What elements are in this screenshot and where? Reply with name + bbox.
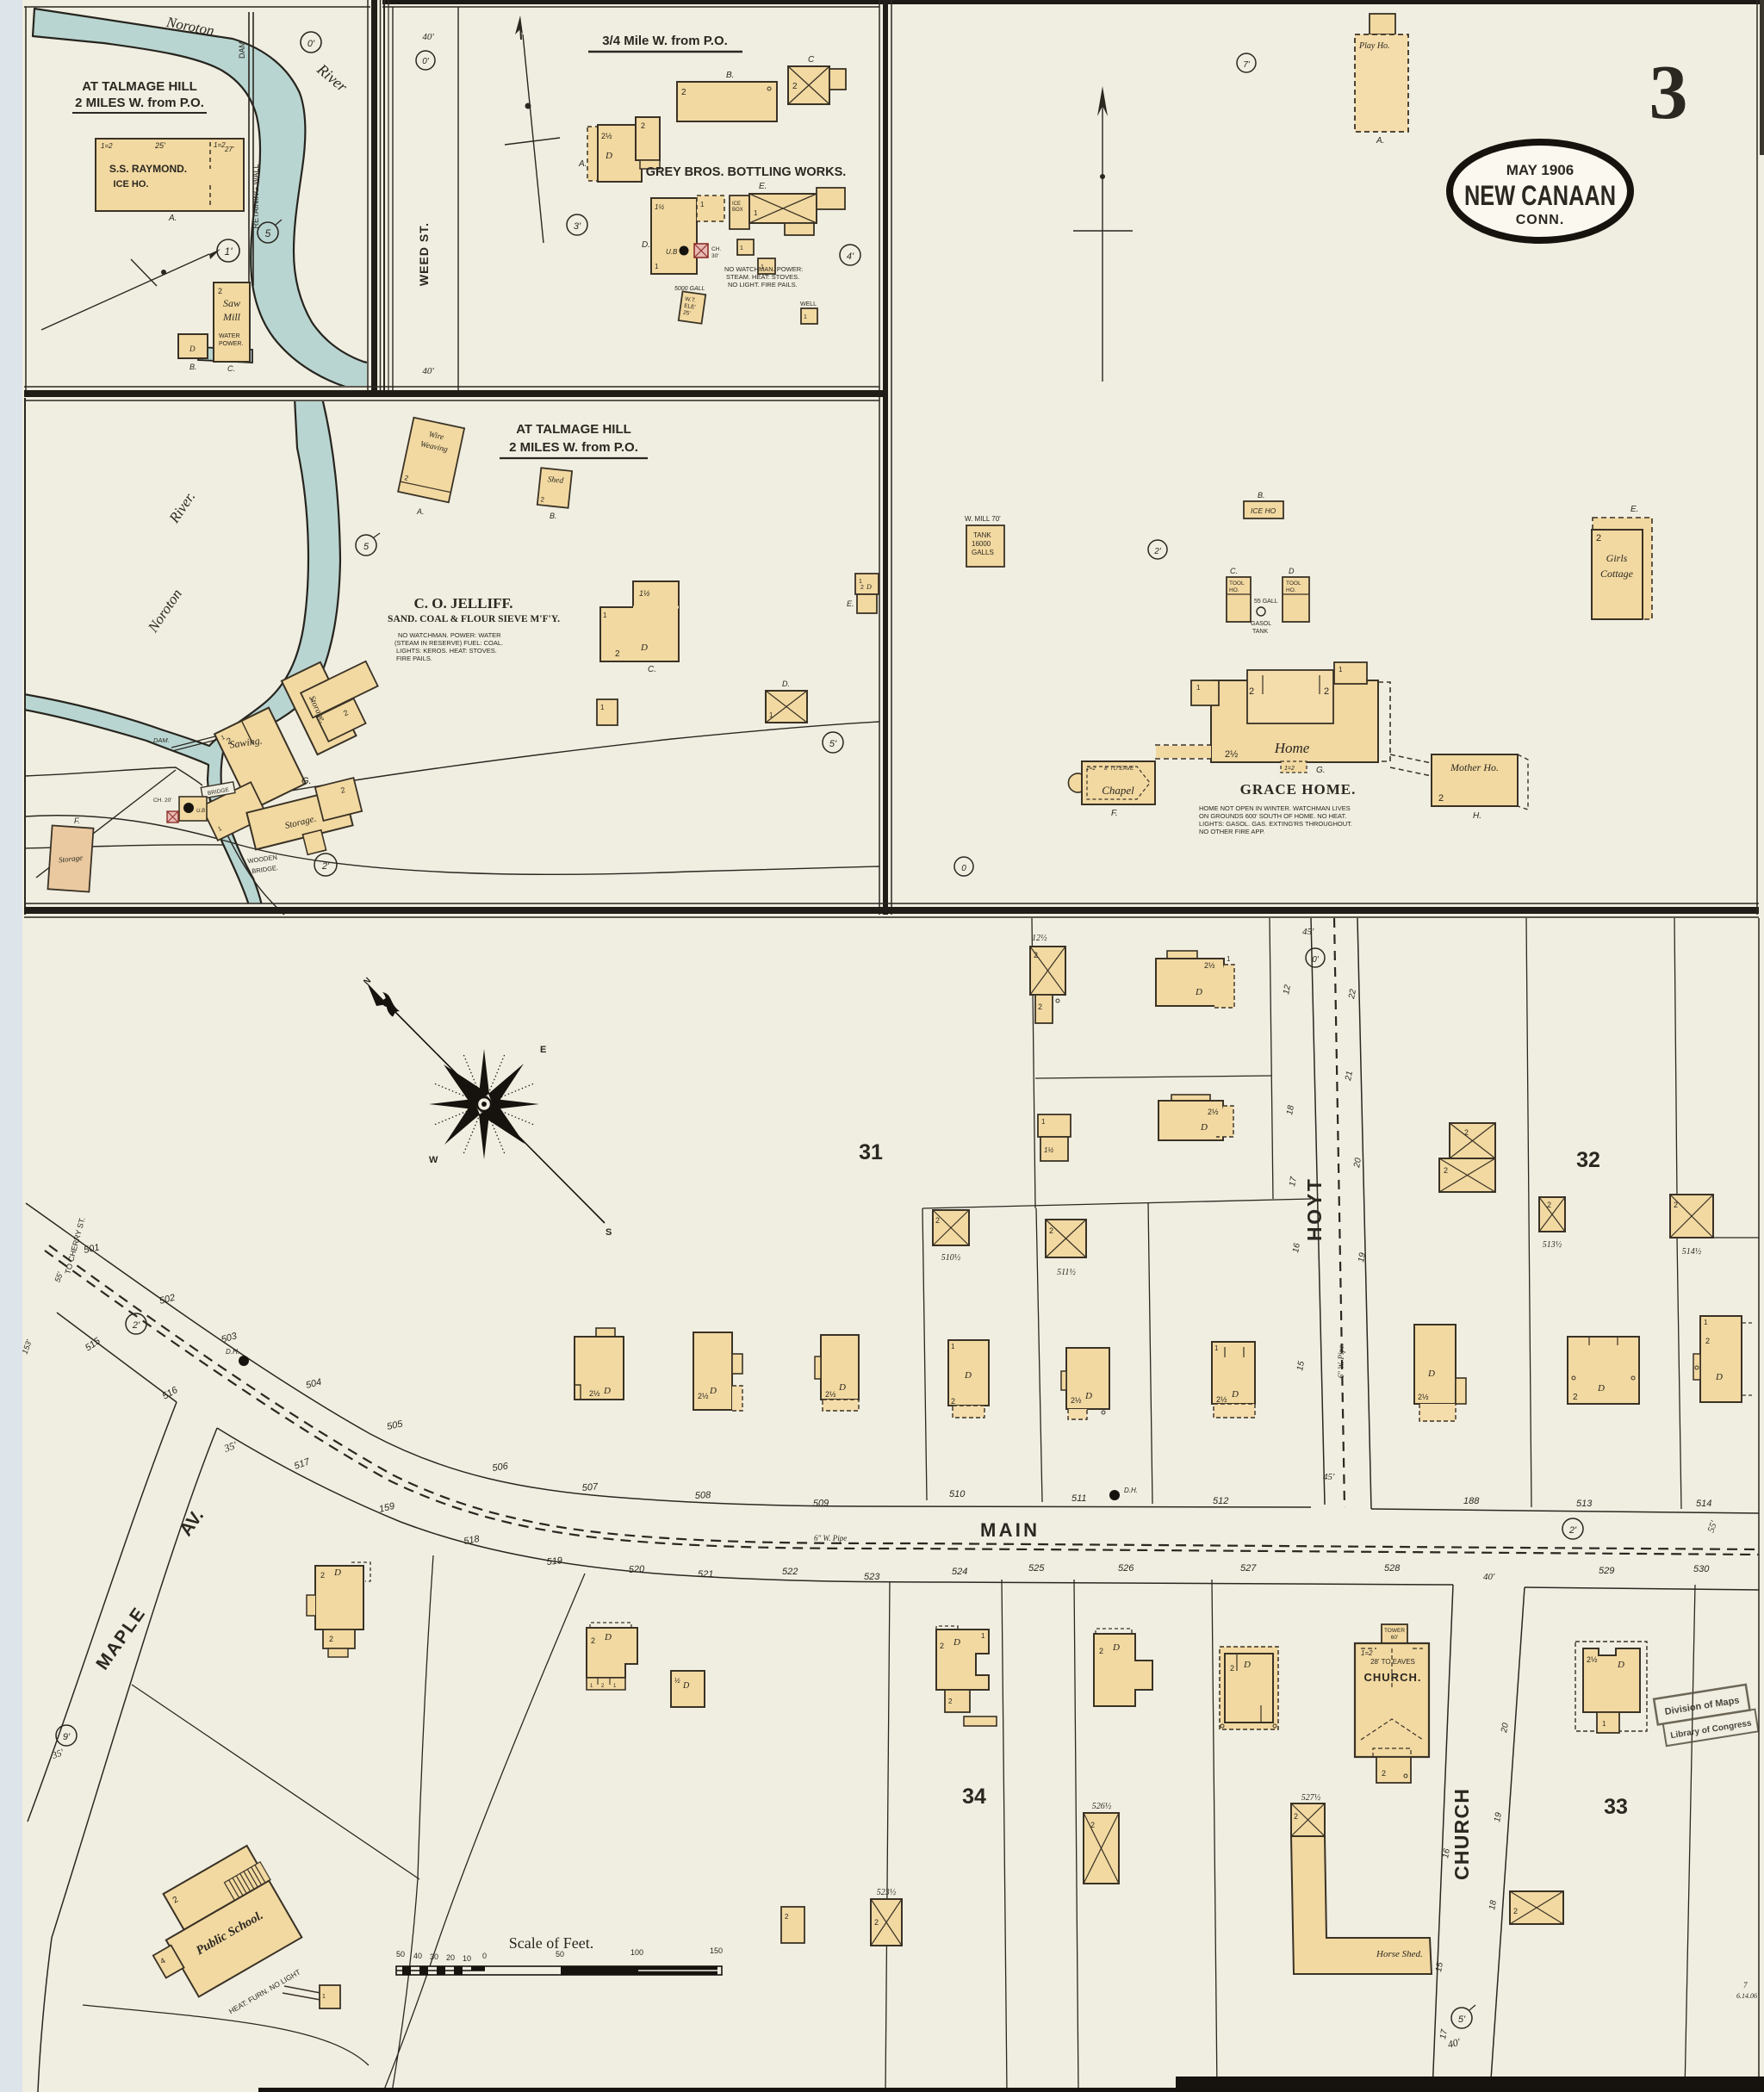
svg-text:1: 1 [951, 1343, 955, 1350]
svg-text:TOWER: TOWER [1384, 1628, 1405, 1634]
svg-text:D: D [682, 1681, 690, 1691]
svg-text:45': 45' [1323, 1472, 1335, 1482]
svg-text:34: 34 [962, 1785, 986, 1809]
svg-text:D: D [1200, 1122, 1208, 1133]
svg-text:Shed: Shed [547, 475, 564, 486]
svg-text:31: 31 [859, 1140, 883, 1164]
svg-text:1: 1 [1196, 684, 1201, 692]
svg-text:2: 2 [951, 1397, 955, 1406]
svg-text:D.H.: D.H. [226, 1348, 239, 1356]
svg-text:40: 40 [413, 1952, 422, 1960]
svg-text:40': 40' [422, 366, 434, 376]
svg-text:2: 2 [1705, 1337, 1710, 1345]
svg-text:CHURCH.: CHURCH. [1364, 1671, 1422, 1684]
svg-text:2: 2 [1444, 1166, 1448, 1175]
svg-text:5': 5' [1458, 2014, 1466, 2025]
svg-text:2: 2 [329, 1635, 333, 1643]
svg-text:2: 2 [1438, 793, 1444, 804]
svg-text:2: 2 [218, 287, 222, 295]
svg-text:1=2: 1=2 [101, 142, 113, 150]
svg-text:523: 523 [864, 1572, 880, 1582]
svg-text:C. O. JELLIFF.: C. O. JELLIFF. [413, 595, 512, 611]
svg-text:1: 1 [322, 1994, 326, 2000]
svg-text:D: D [953, 1637, 960, 1648]
svg-text:D: D [838, 1382, 846, 1393]
svg-text:2½: 2½ [1204, 961, 1215, 970]
svg-text:27': 27' [224, 146, 234, 153]
svg-text:1: 1 [754, 209, 758, 217]
svg-text:2: 2 [860, 585, 864, 591]
svg-text:D: D [1289, 567, 1295, 575]
svg-text:RETAINING WALL: RETAINING WALL [252, 164, 260, 228]
svg-text:2½: 2½ [1208, 1108, 1219, 1116]
svg-text:1½: 1½ [639, 589, 650, 598]
svg-text:B.: B. [189, 363, 197, 371]
svg-text:2: 2 [874, 1918, 879, 1927]
svg-text:2: 2 [1674, 1201, 1678, 1209]
svg-text:D: D [640, 642, 648, 653]
svg-text:H.: H. [1473, 811, 1481, 821]
svg-text:2: 2 [785, 1913, 789, 1921]
svg-text:1': 1' [225, 245, 233, 258]
svg-text:B.: B. [1258, 491, 1265, 500]
svg-text:2: 2 [1090, 1821, 1095, 1829]
svg-text:30: 30 [430, 1952, 438, 1961]
svg-text:514: 514 [1696, 1499, 1711, 1509]
svg-text:D: D [1597, 1383, 1605, 1394]
svg-text:HOYT: HOYT [1303, 1179, 1326, 1241]
svg-text:GRACE HOME.: GRACE HOME. [1240, 781, 1357, 798]
svg-text:7: 7 [1743, 1981, 1748, 1990]
svg-text:7': 7' [1243, 60, 1251, 70]
svg-text:1: 1 [600, 704, 605, 711]
svg-text:2: 2 [591, 1636, 595, 1645]
svg-text:1: 1 [1041, 1118, 1046, 1126]
svg-text:4': 4' [847, 251, 854, 262]
svg-text:BOX: BOX [732, 208, 743, 213]
svg-text:D: D [1231, 1389, 1239, 1400]
svg-text:Home: Home [1274, 740, 1310, 756]
svg-text:S.S. RAYMOND.: S.S. RAYMOND. [109, 163, 187, 175]
svg-text:508: 508 [695, 1490, 712, 1501]
svg-text:527: 527 [1240, 1563, 1257, 1574]
svg-text:514½: 514½ [1682, 1247, 1702, 1257]
svg-text:½: ½ [674, 1677, 680, 1685]
svg-text:5000 GALL: 5000 GALL [674, 286, 705, 292]
svg-text:45': 45' [1302, 927, 1314, 937]
svg-text:HO.: HO. [1229, 587, 1239, 593]
svg-text:E.: E. [1630, 505, 1638, 514]
svg-text:D.H.: D.H. [1124, 1487, 1138, 1494]
svg-text:Scale of Feet.: Scale of Feet. [509, 1934, 593, 1952]
svg-text:6.14.06: 6.14.06 [1736, 1992, 1757, 2000]
svg-text:D: D [866, 583, 872, 591]
svg-text:AT TALMAGE HILL: AT TALMAGE HILL [82, 79, 197, 94]
svg-text:D: D [709, 1386, 717, 1396]
svg-text:2': 2' [321, 861, 330, 872]
svg-text:520: 520 [629, 1564, 646, 1575]
svg-text:2: 2 [1099, 1647, 1103, 1655]
svg-text:150: 150 [710, 1946, 723, 1955]
svg-text:ICE HO.: ICE HO. [114, 179, 149, 189]
svg-text:1: 1 [981, 1632, 985, 1640]
svg-text:519: 519 [546, 1555, 563, 1567]
svg-text:50: 50 [556, 1950, 564, 1959]
svg-text:Horse Shed.: Horse Shed. [1376, 1949, 1423, 1959]
svg-text:D.: D. [642, 240, 650, 250]
svg-text:FIRE PAILS.: FIRE PAILS. [396, 655, 432, 662]
svg-text:W. MILL 70': W. MILL 70' [965, 515, 1001, 523]
svg-text:POWER.: POWER. [219, 341, 243, 347]
svg-text:40': 40' [1483, 1572, 1495, 1582]
svg-text:8' TO EAVE: 8' TO EAVE [1104, 766, 1134, 772]
svg-text:0': 0' [1312, 955, 1320, 965]
svg-text:28' TO EAVES: 28' TO EAVES [1370, 1658, 1415, 1666]
svg-text:HOME NOT OPEN IN WINTER. WATCH: HOME NOT OPEN IN WINTER. WATCHMAN LIVES [1199, 804, 1351, 812]
svg-text:2½: 2½ [589, 1389, 600, 1398]
svg-text:E: E [540, 1045, 546, 1055]
svg-text:1=2: 1=2 [1086, 766, 1096, 772]
svg-text:525: 525 [1028, 1563, 1045, 1574]
svg-text:Saw: Saw [223, 297, 240, 309]
svg-text:1=2: 1=2 [214, 141, 226, 149]
svg-text:2: 2 [1464, 1128, 1469, 1137]
svg-text:CH.: CH. [711, 246, 721, 252]
svg-text:529: 529 [1599, 1566, 1614, 1576]
svg-text:2½: 2½ [1225, 749, 1238, 760]
svg-text:2: 2 [1249, 686, 1254, 697]
svg-text:2: 2 [681, 88, 686, 97]
svg-text:2: 2 [1547, 1201, 1551, 1209]
svg-text:2: 2 [1294, 1812, 1298, 1821]
svg-text:2 MILES W. from P.O.: 2 MILES W. from P.O. [75, 96, 204, 110]
svg-text:6" W. Pipe.: 6" W. Pipe. [1337, 1344, 1345, 1378]
svg-text:20: 20 [1500, 1722, 1511, 1734]
svg-text:20: 20 [446, 1953, 455, 1962]
svg-text:Mill: Mill [222, 311, 241, 323]
svg-text:CH. 20': CH. 20' [153, 798, 171, 804]
svg-text:30': 30' [711, 253, 718, 259]
svg-text:ON GROUNDS 600' SOUTH OF HOME.: ON GROUNDS 600' SOUTH OF HOME. NO HEAT. [1199, 812, 1346, 820]
svg-text:F.: F. [74, 816, 80, 825]
svg-text:LIGHTS: GASOL. GAS. EXTING'RS: LIGHTS: GASOL. GAS. EXTING'RS THROUGHOUT… [1199, 820, 1352, 828]
svg-text:526½: 526½ [1092, 1802, 1112, 1811]
svg-text:3/4 Mile W. from P.O.: 3/4 Mile W. from P.O. [602, 34, 728, 48]
svg-text:2: 2 [615, 649, 620, 659]
svg-text:1: 1 [740, 245, 743, 251]
svg-text:20: 20 [1352, 1157, 1363, 1169]
svg-text:12½: 12½ [1032, 934, 1047, 943]
svg-text:50: 50 [396, 1950, 405, 1959]
svg-text:DAM: DAM [238, 41, 246, 59]
svg-text:513½: 513½ [1543, 1240, 1562, 1250]
svg-text:2': 2' [1568, 1525, 1577, 1536]
svg-text:A.: A. [578, 159, 587, 169]
svg-text:G.: G. [301, 776, 312, 786]
svg-text:0: 0 [482, 1952, 487, 1960]
svg-text:527½: 527½ [1301, 1793, 1321, 1803]
svg-text:D: D [604, 1632, 612, 1642]
svg-text:1: 1 [603, 611, 607, 619]
svg-text:21: 21 [1344, 1071, 1355, 1083]
svg-text:22: 22 [1347, 988, 1358, 1000]
svg-text:511: 511 [1071, 1493, 1087, 1504]
svg-text:2½: 2½ [1071, 1396, 1082, 1405]
svg-text:A.: A. [416, 507, 425, 516]
svg-text:C: C [808, 55, 815, 65]
svg-text:TOOL: TOOL [1286, 580, 1301, 587]
svg-text:0': 0' [422, 57, 430, 66]
svg-text:NO WATCHMAN. POWER: WATER: NO WATCHMAN. POWER: WATER [398, 631, 501, 639]
svg-text:1=2: 1=2 [1284, 766, 1295, 772]
svg-text:2: 2 [1513, 1907, 1518, 1915]
svg-text:40': 40' [422, 32, 434, 42]
svg-text:511½: 511½ [1057, 1268, 1076, 1277]
svg-text:522: 522 [782, 1567, 798, 1577]
svg-text:STEAM. HEAT: STOVES.: STEAM. HEAT: STOVES. [726, 273, 799, 281]
svg-text:TANK: TANK [1252, 629, 1268, 635]
svg-text:1: 1 [804, 314, 807, 320]
svg-text:2: 2 [1049, 1226, 1053, 1235]
svg-text:NO WATCHMAN. POWER:: NO WATCHMAN. POWER: [724, 265, 803, 273]
svg-text:AT TALMAGE HILL: AT TALMAGE HILL [516, 422, 631, 437]
svg-text:2: 2 [1596, 533, 1601, 543]
svg-text:1½: 1½ [1044, 1146, 1053, 1154]
svg-text:528: 528 [1384, 1563, 1401, 1574]
svg-text:2½: 2½ [825, 1390, 836, 1399]
svg-text:D: D [1084, 1391, 1092, 1401]
svg-text:MAIN: MAIN [980, 1519, 1037, 1541]
svg-text:E.: E. [759, 182, 767, 191]
svg-text:513: 513 [1576, 1499, 1593, 1509]
svg-text:WATER: WATER [219, 333, 240, 339]
svg-text:WEED ST.: WEED ST. [417, 222, 431, 286]
svg-text:526: 526 [1118, 1563, 1134, 1574]
svg-text:2: 2 [1573, 1393, 1578, 1402]
svg-text:D: D [1617, 1660, 1624, 1670]
svg-text:ICE HO: ICE HO [1251, 506, 1276, 515]
svg-text:1: 1 [1704, 1319, 1708, 1326]
svg-text:HO.: HO. [1286, 587, 1296, 593]
svg-text:D: D [605, 151, 612, 161]
svg-text:3: 3 [1649, 50, 1688, 135]
svg-text:25': 25' [154, 141, 165, 150]
svg-text:U.B: U.B [196, 809, 205, 814]
svg-text:1: 1 [655, 263, 659, 270]
svg-text:D: D [964, 1370, 972, 1381]
svg-text:510½: 510½ [941, 1253, 961, 1263]
svg-text:D: D [1243, 1660, 1251, 1670]
svg-text:524: 524 [952, 1567, 967, 1577]
svg-text:TOOL: TOOL [1229, 580, 1245, 587]
svg-text:GREY BROS. BOTTLING WORKS.: GREY BROS. BOTTLING WORKS. [646, 165, 847, 179]
svg-text:55 GALL: 55 GALL [1254, 599, 1278, 605]
svg-text:GASOL: GASOL [1251, 621, 1271, 627]
svg-text:1: 1 [1602, 1720, 1606, 1728]
svg-text:2: 2 [940, 1642, 944, 1650]
svg-text:NO LIGHT. FIRE PAILS.: NO LIGHT. FIRE PAILS. [728, 281, 798, 289]
svg-text:510: 510 [949, 1489, 966, 1499]
svg-text:2: 2 [792, 82, 798, 91]
svg-text:2: 2 [320, 1571, 325, 1580]
svg-text:F.: F. [1111, 809, 1118, 818]
svg-text:C.: C. [1230, 567, 1238, 575]
svg-text:C.: C. [648, 665, 656, 674]
svg-text:2½: 2½ [698, 1392, 709, 1400]
svg-text:2: 2 [1382, 1769, 1386, 1778]
svg-text:2: 2 [948, 1698, 953, 1705]
svg-text:5': 5' [829, 739, 837, 749]
svg-text:Cottage: Cottage [1600, 568, 1634, 580]
svg-text:D: D [1715, 1372, 1723, 1382]
svg-text:Girls: Girls [1606, 552, 1628, 564]
svg-text:S: S [606, 1227, 612, 1238]
svg-text:WELL: WELL [800, 301, 817, 307]
svg-text:188: 188 [1463, 1496, 1480, 1506]
svg-text:521: 521 [698, 1569, 713, 1580]
svg-text:5: 5 [265, 227, 271, 239]
svg-text:D: D [1195, 987, 1202, 997]
svg-text:2½: 2½ [1418, 1393, 1429, 1401]
svg-text:16000: 16000 [972, 540, 991, 548]
svg-text:1½: 1½ [655, 203, 664, 211]
svg-text:E.: E. [847, 599, 854, 608]
svg-text:TANK: TANK [973, 531, 991, 539]
svg-text:NEW CANAAN: NEW CANAAN [1464, 180, 1616, 211]
svg-text:2': 2' [132, 1320, 140, 1331]
svg-text:2: 2 [1034, 951, 1038, 959]
svg-text:25': 25' [683, 310, 691, 317]
svg-text:1: 1 [1339, 666, 1343, 674]
svg-text:1=2: 1=2 [1361, 1649, 1373, 1657]
svg-text:NO OTHER FIRE APP.: NO OTHER FIRE APP. [1199, 828, 1265, 835]
svg-text:D: D [189, 345, 196, 353]
svg-text:CONN.: CONN. [1516, 213, 1565, 227]
svg-text:Chapel: Chapel [1102, 784, 1134, 797]
svg-text:CHURCH: CHURCH [1450, 1789, 1473, 1880]
svg-text:9': 9' [63, 1732, 71, 1742]
svg-text:523½: 523½ [877, 1888, 897, 1897]
svg-text:W: W [429, 1155, 438, 1165]
svg-text:B.: B. [550, 512, 557, 520]
svg-text:1: 1 [1227, 955, 1231, 963]
svg-text:1: 1 [1214, 1344, 1219, 1352]
svg-text:(STEAM IN RESERVE) FUEL: COAL.: (STEAM IN RESERVE) FUEL: COAL. [394, 639, 503, 647]
svg-text:32: 32 [1576, 1148, 1600, 1172]
svg-text:6" W. Pipe: 6" W. Pipe [814, 1534, 847, 1543]
svg-text:2: 2 [1324, 686, 1329, 697]
svg-text:2: 2 [1230, 1664, 1234, 1673]
svg-text:1: 1 [859, 579, 862, 585]
svg-text:A.: A. [1376, 136, 1384, 146]
svg-text:1: 1 [769, 711, 773, 719]
svg-text:1: 1 [700, 201, 705, 208]
svg-text:B.: B. [726, 71, 734, 80]
svg-text:SAND. COAL & FLOUR SIEVE M'F'Y: SAND. COAL & FLOUR SIEVE M'F'Y. [388, 614, 560, 624]
svg-text:2: 2 [935, 1216, 940, 1225]
svg-text:2': 2' [1153, 547, 1162, 556]
svg-text:C.: C. [227, 364, 235, 373]
svg-text:D: D [1427, 1369, 1435, 1379]
svg-text:2½: 2½ [1587, 1655, 1598, 1664]
svg-text:A.: A. [168, 214, 177, 223]
svg-text:2: 2 [641, 121, 645, 130]
svg-text:10: 10 [463, 1954, 471, 1963]
svg-text:2½: 2½ [1216, 1395, 1227, 1404]
svg-text:60': 60' [1391, 1635, 1398, 1641]
svg-text:3': 3' [574, 221, 581, 232]
svg-text:Play Ho.: Play Ho. [1358, 41, 1390, 51]
svg-text:D.: D. [782, 680, 790, 688]
svg-text:100: 100 [630, 1948, 643, 1957]
svg-text:2: 2 [1038, 1003, 1042, 1011]
svg-text:0: 0 [961, 864, 966, 873]
svg-text:D: D [333, 1567, 341, 1578]
svg-text:D: D [1112, 1642, 1120, 1653]
svg-text:509: 509 [813, 1498, 829, 1509]
svg-text:33: 33 [1604, 1795, 1628, 1819]
svg-text:LIGHTS: KEROS. HEAT: STOVES.: LIGHTS: KEROS. HEAT: STOVES. [396, 647, 497, 655]
svg-text:507: 507 [581, 1481, 599, 1493]
svg-text:2 MILES W. from P.O.: 2 MILES W. from P.O. [509, 440, 638, 455]
svg-text:Mother Ho.: Mother Ho. [1450, 761, 1499, 773]
svg-text:0': 0' [307, 39, 315, 49]
svg-text:ICE: ICE [732, 202, 741, 207]
svg-text:D: D [603, 1386, 611, 1396]
svg-text:MAY 1906: MAY 1906 [1506, 162, 1574, 178]
svg-text:512: 512 [1213, 1496, 1228, 1506]
svg-text:DAM.: DAM. [153, 736, 170, 744]
svg-text:G.: G. [1316, 766, 1326, 775]
svg-text:530: 530 [1693, 1564, 1710, 1574]
svg-text:5: 5 [363, 542, 370, 552]
svg-text:GALLS: GALLS [972, 549, 994, 556]
svg-text:2½: 2½ [601, 132, 612, 140]
svg-text:U.B: U.B [666, 248, 678, 256]
